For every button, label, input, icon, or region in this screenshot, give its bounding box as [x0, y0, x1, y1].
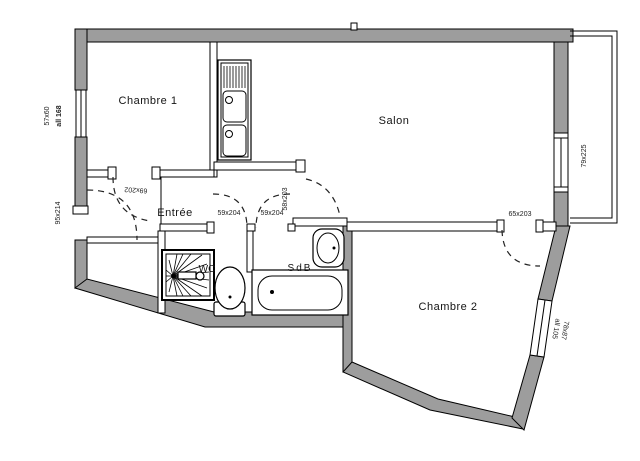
- toilet-drain-dot: [229, 296, 232, 299]
- dim-left-window-sill: all 168: [56, 105, 63, 127]
- wc-door-jamb: [207, 222, 214, 233]
- chambre2-door-jamb-right: [536, 220, 543, 232]
- wall-salon-right-upper: [554, 42, 568, 135]
- wall-top: [75, 29, 573, 42]
- wall-wc-sdb-divider: [247, 231, 253, 272]
- room-label-chambre2: Chambre 2: [419, 301, 478, 313]
- entry-door-jamb: [73, 206, 88, 214]
- toilet-bowl: [215, 267, 245, 309]
- wall-chambre1-right: [210, 42, 217, 177]
- dim-chambre2-window-sill: all 105: [550, 318, 560, 340]
- room-label-wc: WC: [199, 264, 216, 275]
- shower-icon: [162, 250, 214, 300]
- chambre1-door-jamb-right: [152, 167, 160, 179]
- dim-chambre2-door: 65x203: [509, 211, 532, 218]
- shower-drain-dot: [171, 274, 175, 278]
- wall-sdb-top-right: [288, 224, 295, 231]
- wall-top-tick: [351, 23, 357, 30]
- kitchen-sink-icon: [218, 60, 251, 160]
- wall-right-slant-lower: [512, 355, 544, 430]
- wall-chambre1-bottom-right: [158, 170, 214, 177]
- dim-chambre1-door: 69x202: [124, 185, 148, 194]
- dim-wc-door: 59x204: [218, 210, 241, 217]
- dim-chambre2-window-group: 78x87 all 105: [550, 318, 569, 341]
- salon-door-jamb: [296, 160, 305, 172]
- room-label-sdb: SdB: [288, 263, 313, 274]
- washbasin-drain-dot: [333, 247, 336, 250]
- wall-left-upper: [75, 29, 87, 90]
- wall-salon-bottom-left: [347, 222, 503, 231]
- toilet-icon: [214, 267, 245, 316]
- wall-corridor-bottom: [293, 218, 347, 226]
- chambre1-door-arc: [113, 177, 150, 221]
- dim-salon-door: 58x203: [282, 187, 289, 210]
- bathtub-icon: [252, 270, 348, 315]
- room-label-salon: Salon: [379, 115, 410, 127]
- balcony-door-jamb-bottom: [554, 187, 568, 192]
- chambre2-door-jamb-left: [497, 220, 504, 232]
- room-label-chambre1: Chambre 1: [119, 95, 178, 107]
- floor-plan-svg: Chambre 1 Salon Entrée WC SdB Chambre 2 …: [0, 0, 640, 461]
- washbasin-icon: [313, 229, 344, 267]
- wall-chambre2-bottom-diagonal: [343, 362, 523, 429]
- balcony-outline-inner: [570, 36, 612, 218]
- dim-sdb-door: 59x204: [261, 210, 284, 217]
- bathtub-drain-dot: [270, 290, 274, 294]
- wall-wc-top: [160, 224, 213, 231]
- salon-door-arc: [306, 179, 340, 216]
- wall-entree-bottom: [87, 237, 162, 243]
- wall-left-mid: [75, 137, 87, 213]
- dim-balcony: 79x225: [581, 144, 588, 167]
- balcony-outline-outer: [570, 31, 617, 223]
- chambre1-door-jamb-left: [108, 167, 116, 179]
- chambre2-door-arc: [502, 230, 540, 266]
- wall-wc-sdb-jamb: [247, 224, 255, 231]
- wall-kitchen-bottom: [214, 162, 304, 170]
- floor-plan: Chambre 1 Salon Entrée WC SdB Chambre 2 …: [0, 0, 640, 461]
- dim-entry-door: 95x214: [55, 201, 62, 224]
- shower-handle-bar: [178, 272, 196, 279]
- wall-salon-right-lower: [554, 190, 568, 226]
- dim-left-window-size: 57x60: [44, 106, 51, 125]
- room-label-entree: Entrée: [157, 207, 192, 219]
- entry-door-arc: [87, 190, 137, 240]
- wall-right-slant-upper: [538, 226, 570, 301]
- balcony-door-jamb-top: [554, 133, 568, 138]
